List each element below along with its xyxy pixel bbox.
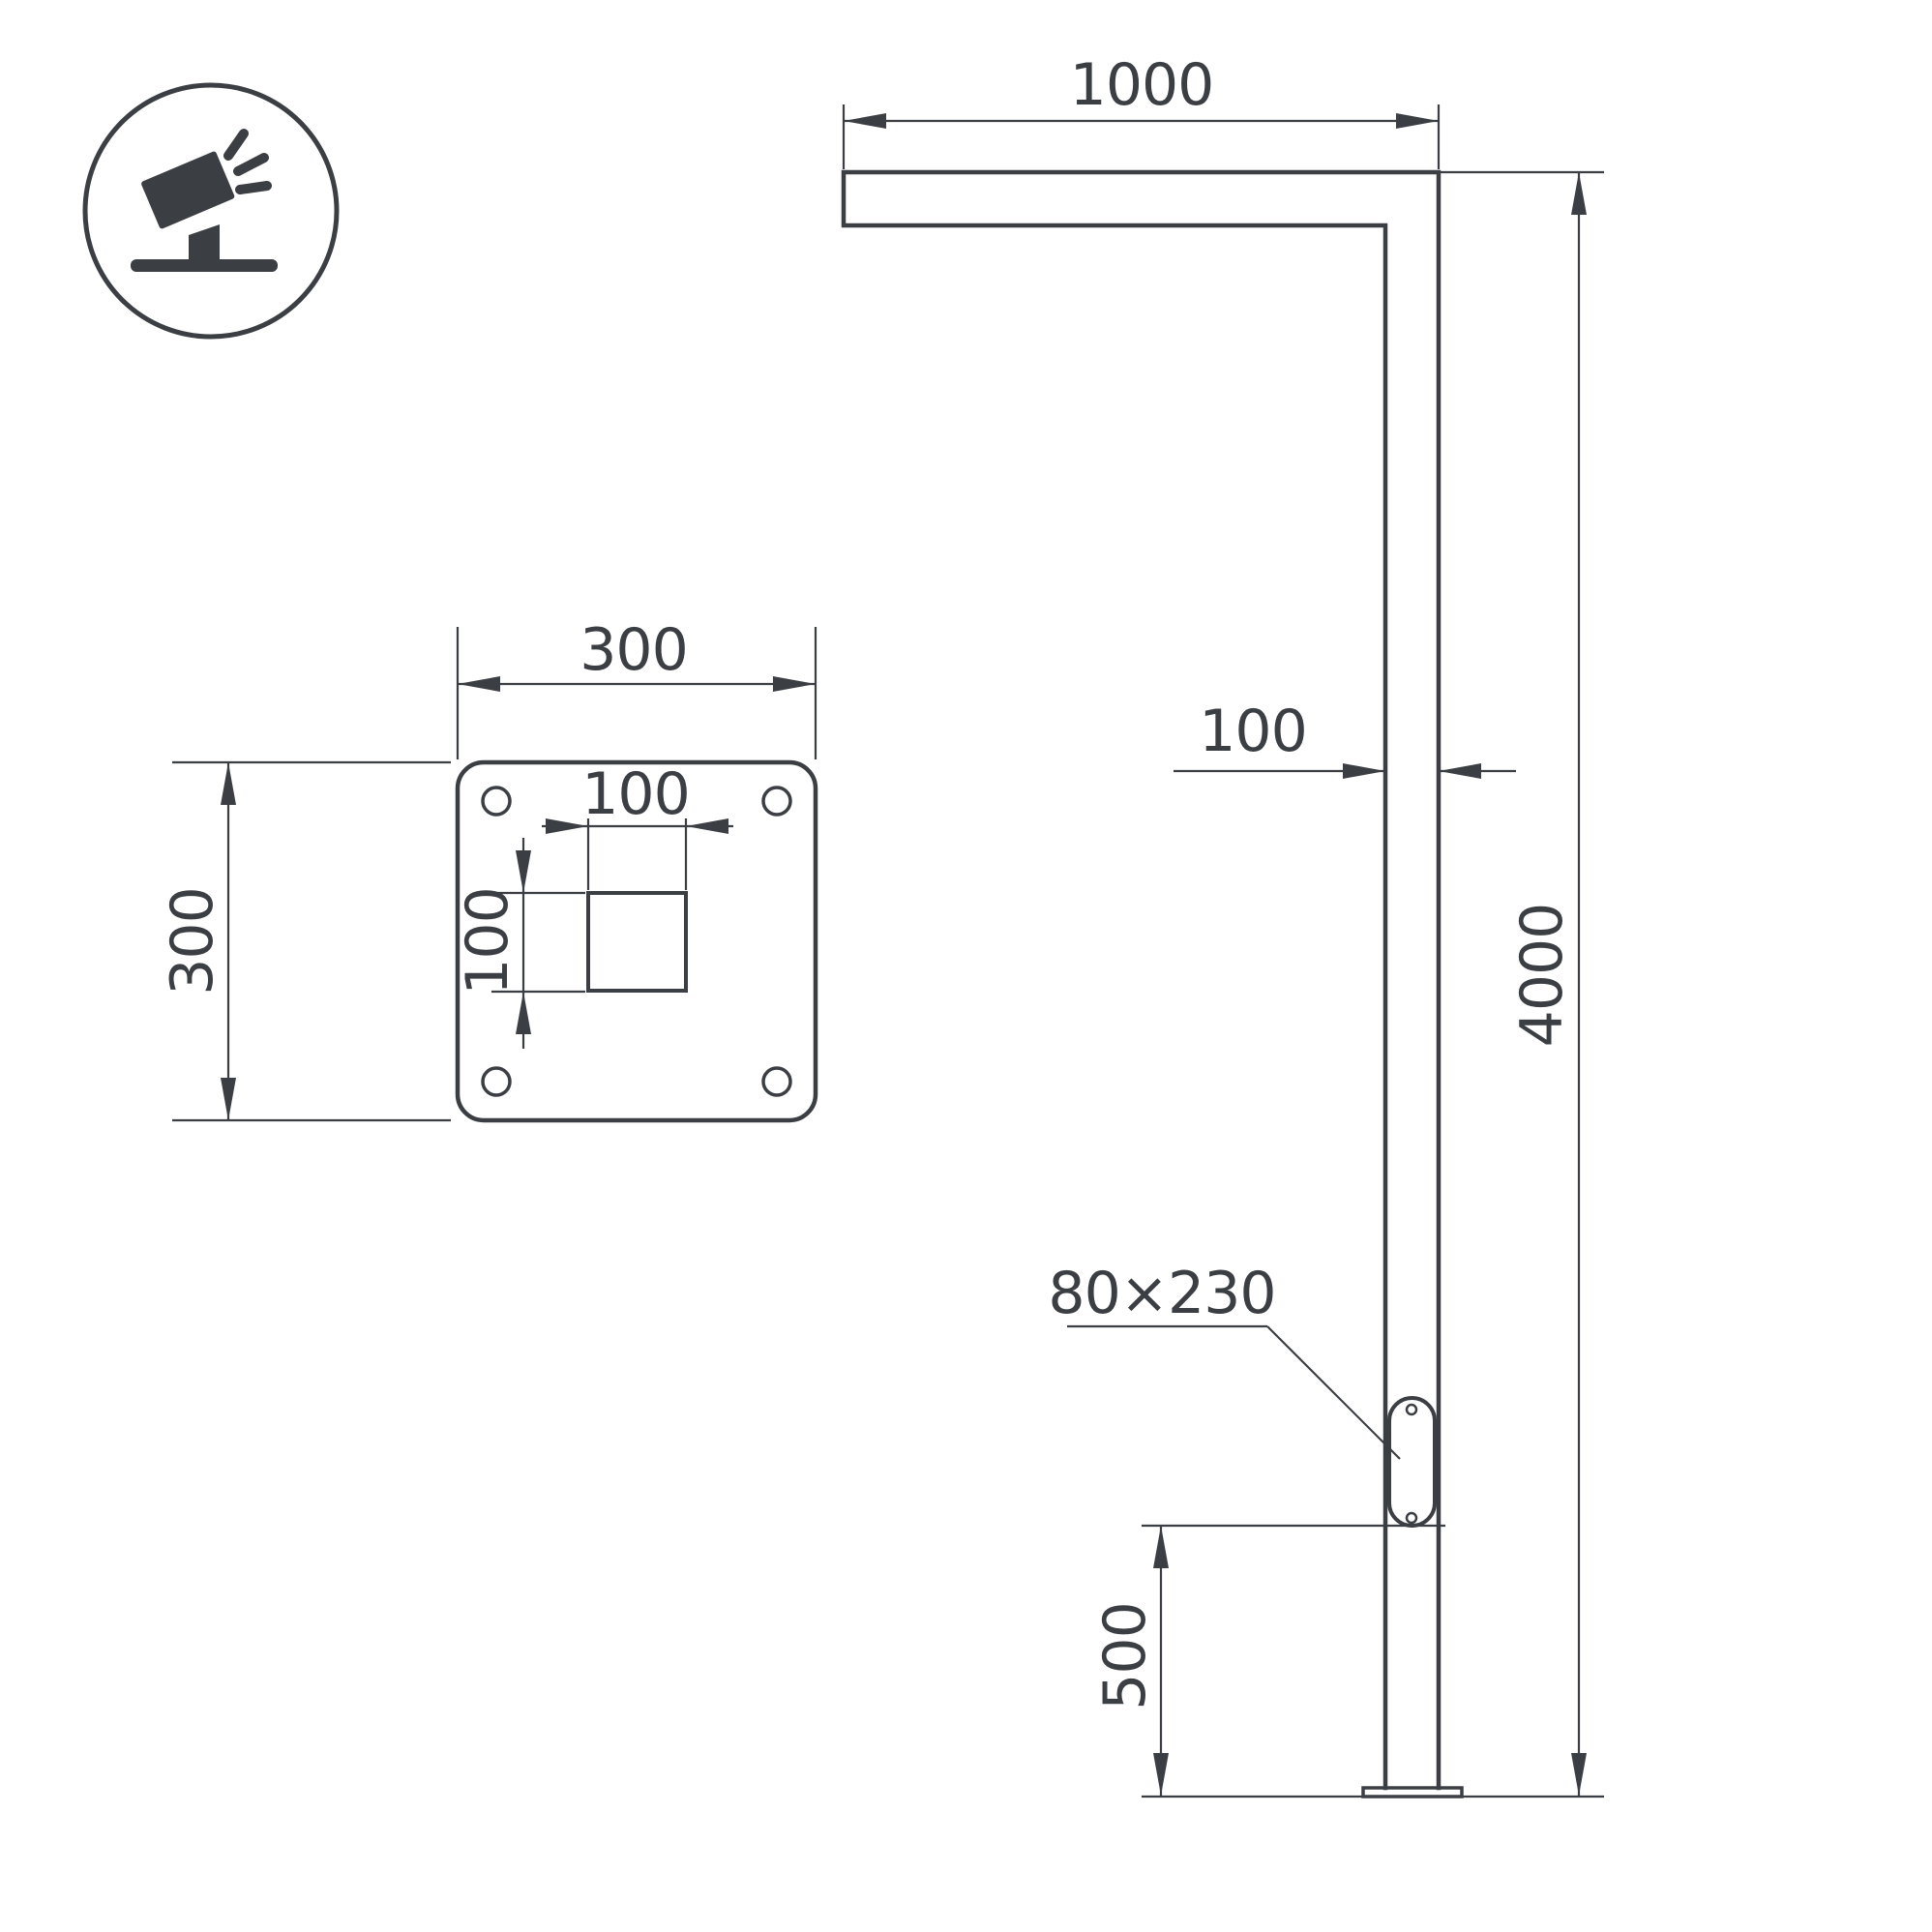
dim-pole-width-label: 100 <box>1199 698 1307 765</box>
floodlight-stand <box>189 224 220 259</box>
icon-circle-border <box>85 85 337 337</box>
dim-arm-length-label: 1000 <box>1070 51 1214 119</box>
floodlight-base <box>131 259 278 272</box>
bolt-hole <box>763 1068 790 1095</box>
dim-plate-height-label: 300 <box>159 887 226 996</box>
bolt-hole <box>763 788 790 815</box>
dim-plate-width: 300 <box>458 616 816 759</box>
service-hatch <box>1389 1398 1435 1526</box>
arrowhead <box>1343 763 1385 779</box>
dim-pole-height-label: 4000 <box>1508 904 1576 1048</box>
pole-outline <box>844 172 1439 1788</box>
light-ray <box>240 186 267 190</box>
arrowhead <box>773 676 816 692</box>
arrowhead <box>1396 113 1439 129</box>
dim-hatch-offset: 500 <box>1091 1526 1445 1796</box>
arrowhead <box>686 818 728 834</box>
dim-plate-height: 300 <box>159 762 451 1120</box>
dim-socket-height: 100 <box>454 838 585 1049</box>
hatch-cover <box>1389 1398 1435 1526</box>
bolt-hole <box>483 788 510 815</box>
arrowhead <box>221 762 236 805</box>
light-ray <box>238 158 264 171</box>
dim-socket-height-label: 100 <box>454 887 521 996</box>
hatch-screw <box>1407 1513 1416 1523</box>
floodlight-body <box>140 151 235 230</box>
leader-hatch-size: 80×230 <box>1048 1260 1400 1459</box>
arrowhead <box>221 1078 236 1120</box>
light-rays-icon <box>228 134 267 190</box>
dim-arm-length: 1000 <box>844 51 1439 169</box>
arrowhead <box>1153 1526 1169 1568</box>
bolt-holes <box>483 788 790 1095</box>
dim-socket-width-label: 100 <box>581 760 690 828</box>
arrowhead <box>1571 172 1587 215</box>
dim-pole-height: 4000 <box>1441 172 1604 1796</box>
arrowhead <box>516 850 531 893</box>
arrowhead <box>1439 763 1481 779</box>
arrowhead <box>1571 1753 1587 1796</box>
arrowhead <box>1153 1753 1169 1796</box>
dim-hatch-offset-label: 500 <box>1091 1602 1159 1710</box>
bolt-hole <box>483 1068 510 1095</box>
arrowhead <box>458 676 500 692</box>
arrowhead <box>844 113 886 129</box>
pole-socket-square <box>588 893 686 991</box>
leader-line <box>1267 1326 1400 1459</box>
base-plate-edge <box>1363 1788 1462 1797</box>
floodlight-icon <box>85 85 337 337</box>
light-ray <box>228 134 244 156</box>
pole-side-view: 1000 100 4000 500 <box>844 51 1604 1797</box>
arrowhead <box>516 992 531 1034</box>
hatch-size-label: 80×230 <box>1048 1260 1275 1327</box>
flange-plate-top-view: 300 300 100 100 <box>159 616 816 1120</box>
hatch-screw <box>1407 1405 1416 1414</box>
dim-pole-width: 100 <box>1174 698 1516 779</box>
dim-plate-width-label: 300 <box>580 616 688 684</box>
dim-socket-width: 100 <box>542 760 733 890</box>
technical-drawing: 300 300 100 100 <box>0 0 1932 1932</box>
